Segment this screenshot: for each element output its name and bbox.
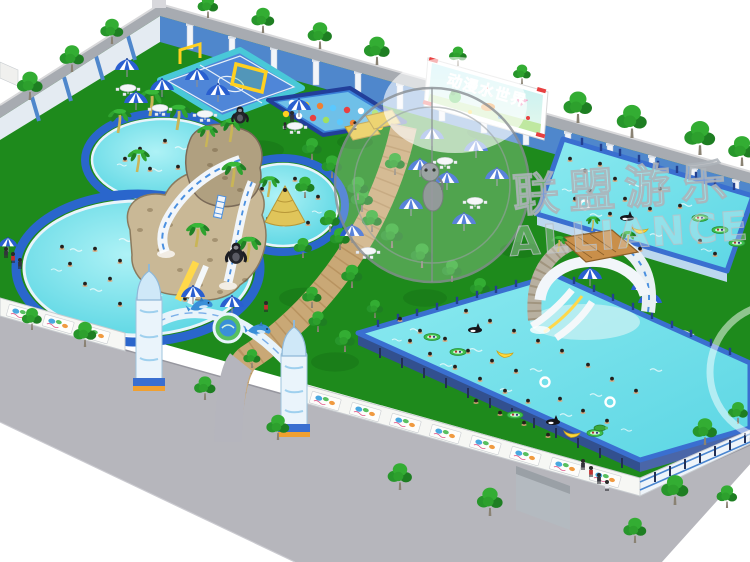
pool-post xyxy=(729,348,731,355)
entrance-walkway xyxy=(228,362,241,442)
pool-post xyxy=(612,294,614,301)
pool-post xyxy=(619,149,621,156)
frame-tick xyxy=(577,438,579,448)
frame-tick xyxy=(445,378,447,388)
fence-post xyxy=(699,453,701,463)
stone xyxy=(242,278,248,282)
stone xyxy=(147,208,153,212)
pool-post xyxy=(600,144,602,151)
frame-tick xyxy=(401,358,403,368)
fence-post xyxy=(714,446,716,456)
pool-post xyxy=(436,303,438,310)
corner-post xyxy=(152,0,166,8)
stone xyxy=(207,258,213,262)
pool-post xyxy=(573,277,575,284)
stone xyxy=(177,268,183,272)
stone xyxy=(217,290,223,294)
pool-post xyxy=(581,138,583,145)
raft-float-icon xyxy=(450,349,466,356)
pool-post xyxy=(651,312,653,319)
fence-post xyxy=(669,466,671,476)
pool-post xyxy=(456,297,458,304)
frame-tick xyxy=(533,418,535,428)
stone xyxy=(137,228,143,232)
grass-patch xyxy=(403,289,447,307)
wall-pillar xyxy=(312,59,320,85)
stone xyxy=(212,148,218,152)
frame-tick xyxy=(621,458,623,468)
fence-post xyxy=(729,440,731,450)
frame-tick xyxy=(467,388,469,398)
grass-patch xyxy=(311,352,359,371)
stone xyxy=(222,176,228,180)
pool-post xyxy=(671,321,673,328)
frame-tick xyxy=(379,348,381,358)
pool-post xyxy=(690,330,692,337)
stone xyxy=(212,238,218,242)
pool-post xyxy=(476,291,478,298)
pool-post xyxy=(416,309,418,316)
frame-tick xyxy=(599,448,601,458)
raft-float-icon xyxy=(424,334,440,341)
raft-float-icon xyxy=(507,412,523,419)
pool-post xyxy=(495,286,497,293)
pool-post xyxy=(632,303,634,310)
frame-tick xyxy=(555,428,557,438)
frame-tick xyxy=(423,368,425,378)
stone xyxy=(207,163,213,167)
pool-post xyxy=(593,285,595,292)
stone xyxy=(237,188,243,192)
fence-post xyxy=(654,472,656,482)
fence-post xyxy=(684,459,686,469)
pool-post xyxy=(377,320,379,327)
frame-tick xyxy=(489,398,491,408)
water-park-render: 动漫水世界 xyxy=(0,0,750,562)
pool-post xyxy=(515,280,517,287)
water-park-scene: 动漫水世界 xyxy=(0,0,750,562)
